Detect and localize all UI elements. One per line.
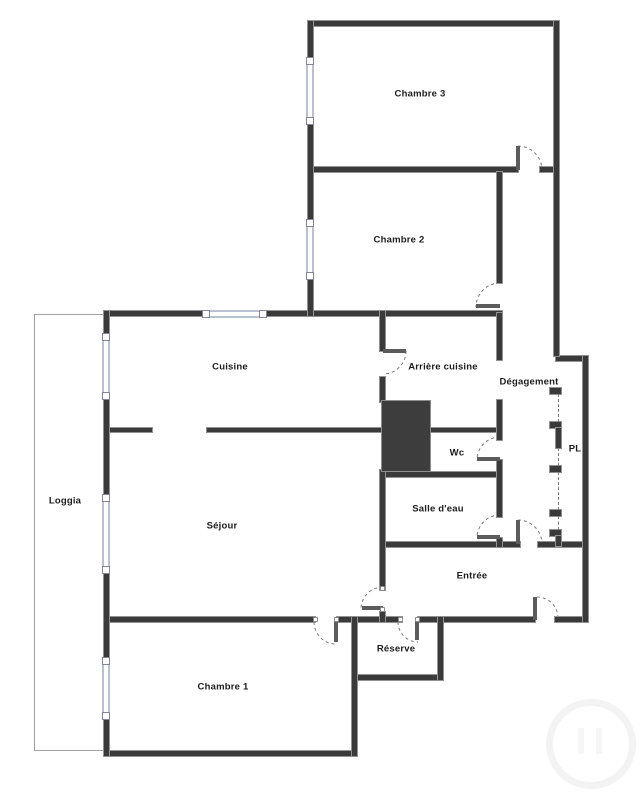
wall bbox=[337, 617, 402, 622]
wall bbox=[106, 428, 152, 432]
door-leaf-wc bbox=[477, 457, 500, 461]
wall bbox=[352, 617, 357, 756]
window-marker bbox=[102, 566, 110, 574]
window-chambre3 bbox=[306, 60, 314, 122]
door-jamb bbox=[380, 586, 385, 591]
room-label-arriere-cuisine: Arrière cuisine bbox=[408, 362, 478, 373]
wall bbox=[308, 21, 313, 60]
window-marker bbox=[306, 272, 314, 280]
window-loggia-1 bbox=[102, 336, 110, 397]
wall bbox=[497, 400, 502, 440]
floor-plan: Chambre 3 Chambre 2 Cuisine Arrière cuis… bbox=[0, 0, 640, 798]
door-leaf-chambre3 bbox=[516, 146, 520, 170]
wall bbox=[352, 675, 443, 680]
window-marker bbox=[306, 57, 314, 65]
door-jamb bbox=[313, 617, 318, 622]
door-leaf-front-door bbox=[533, 597, 537, 620]
room-label-reserve: Réserve bbox=[377, 644, 415, 655]
door-jamb bbox=[334, 617, 339, 622]
wall bbox=[104, 717, 109, 756]
room-label-pl: PL bbox=[569, 444, 582, 455]
wall bbox=[380, 377, 385, 402]
loggia-outline bbox=[34, 314, 106, 751]
wall bbox=[380, 311, 385, 351]
watermark-logo bbox=[546, 699, 636, 789]
door-leaf-degagement bbox=[516, 520, 520, 544]
closet-jamb bbox=[550, 510, 561, 516]
window-marker bbox=[306, 117, 314, 125]
watermark-mark bbox=[596, 728, 602, 754]
wall bbox=[104, 572, 109, 660]
door-leaf-chambre1 bbox=[334, 620, 338, 642]
wall bbox=[308, 277, 313, 316]
wall bbox=[497, 538, 502, 547]
door-arc-front-door bbox=[537, 597, 558, 618]
wall bbox=[308, 122, 313, 222]
wall bbox=[104, 311, 205, 316]
room-label-salle-deau: Salle d'eau bbox=[412, 504, 463, 515]
wall bbox=[380, 612, 385, 622]
door-arc-chambre1 bbox=[314, 622, 336, 644]
room-label-chambre2: Chambre 2 bbox=[374, 235, 425, 246]
duct-shaft bbox=[381, 400, 431, 472]
bifold-door bbox=[558, 516, 559, 530]
wall bbox=[538, 542, 588, 547]
room-label-chambre3: Chambre 3 bbox=[395, 89, 446, 100]
room-label-entree: Entrée bbox=[457, 571, 488, 582]
wall bbox=[308, 21, 559, 26]
room-label-chambre1: Chambre 1 bbox=[198, 682, 249, 693]
wall bbox=[497, 460, 502, 517]
closet-jamb bbox=[550, 466, 561, 472]
door-arc-chambre3 bbox=[518, 146, 542, 170]
room-label-loggia: Loggia bbox=[49, 496, 81, 507]
window-cuisine bbox=[205, 310, 262, 318]
window-marker bbox=[202, 310, 210, 318]
door-jamb bbox=[380, 607, 385, 612]
wall bbox=[380, 472, 502, 477]
room-label-wc: Wc bbox=[450, 448, 465, 459]
door-leaf-chambre2 bbox=[476, 304, 500, 308]
door-leaf-reserve bbox=[415, 620, 419, 640]
wall bbox=[207, 428, 502, 432]
wall bbox=[104, 397, 109, 497]
wall bbox=[556, 428, 561, 448]
window-chambre2 bbox=[306, 222, 314, 277]
door-leaf-salle-deau bbox=[477, 535, 500, 539]
window-marker bbox=[102, 657, 110, 665]
room-label-sejour: Séjour bbox=[207, 521, 238, 532]
window-marker bbox=[102, 712, 110, 720]
wall bbox=[380, 470, 385, 590]
wall bbox=[583, 356, 588, 622]
door-leaf-arriere-cuisine bbox=[383, 349, 406, 353]
room-label-cuisine: Cuisine bbox=[212, 362, 248, 373]
bifold-door bbox=[558, 394, 559, 422]
watermark-mark bbox=[578, 728, 584, 754]
wall bbox=[104, 617, 315, 622]
wall bbox=[554, 21, 559, 356]
window-marker bbox=[102, 392, 110, 400]
window-loggia-2 bbox=[102, 497, 110, 572]
window-marker bbox=[102, 333, 110, 341]
wall bbox=[497, 172, 502, 283]
door-arc-arriere-cuisine bbox=[383, 351, 406, 374]
wall bbox=[438, 617, 443, 680]
window-loggia-3 bbox=[102, 660, 110, 717]
window-marker bbox=[102, 494, 110, 502]
window-marker bbox=[306, 219, 314, 227]
door-arc-degagement-entree bbox=[518, 520, 542, 544]
wall bbox=[497, 313, 502, 360]
bifold-door bbox=[558, 448, 559, 466]
wall bbox=[418, 617, 535, 622]
room-label-degagement: Dégagement bbox=[499, 377, 558, 388]
wall bbox=[308, 167, 518, 172]
wall bbox=[556, 536, 561, 546]
closet-jamb bbox=[550, 388, 561, 394]
wall bbox=[104, 751, 357, 756]
bifold-door bbox=[558, 472, 559, 510]
door-jamb bbox=[415, 617, 420, 622]
door-jamb bbox=[398, 617, 403, 622]
window-marker bbox=[259, 310, 267, 318]
